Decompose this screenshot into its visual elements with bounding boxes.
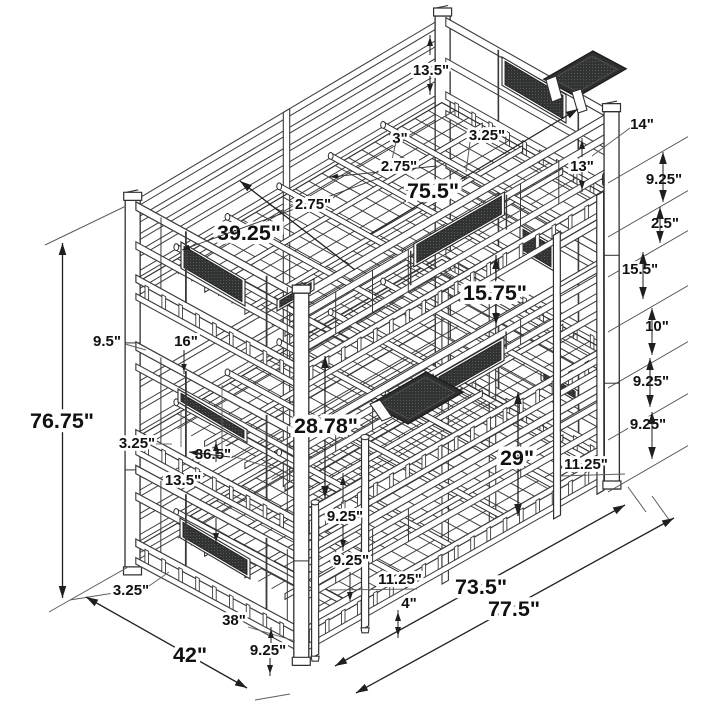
svg-text:4": 4" bbox=[401, 595, 416, 612]
svg-text:13.5": 13.5" bbox=[413, 62, 449, 79]
svg-text:28.78": 28.78" bbox=[294, 414, 358, 438]
svg-text:39.25": 39.25" bbox=[217, 221, 281, 245]
svg-text:77.5": 77.5" bbox=[488, 597, 540, 621]
svg-text:76.75": 76.75" bbox=[30, 409, 94, 433]
svg-text:3": 3" bbox=[392, 130, 407, 147]
svg-text:9.25": 9.25" bbox=[633, 373, 669, 390]
svg-text:2.75": 2.75" bbox=[381, 158, 417, 175]
svg-text:10": 10" bbox=[645, 318, 669, 335]
svg-text:9.25": 9.25" bbox=[327, 508, 363, 525]
svg-text:14": 14" bbox=[630, 116, 654, 133]
svg-text:29": 29" bbox=[500, 446, 534, 470]
svg-text:13.5": 13.5" bbox=[165, 472, 201, 489]
svg-text:11.25": 11.25" bbox=[564, 456, 608, 473]
svg-text:11.25": 11.25" bbox=[378, 571, 422, 588]
svg-text:16": 16" bbox=[174, 333, 198, 350]
svg-text:38": 38" bbox=[222, 612, 246, 629]
svg-text:15.75": 15.75" bbox=[463, 281, 527, 305]
svg-text:2.5": 2.5" bbox=[651, 215, 679, 232]
svg-text:3.25": 3.25" bbox=[113, 582, 149, 599]
svg-text:9.25": 9.25" bbox=[630, 416, 666, 433]
svg-text:9.25": 9.25" bbox=[333, 552, 369, 569]
svg-text:42": 42" bbox=[173, 643, 207, 667]
svg-text:2.75": 2.75" bbox=[295, 196, 331, 213]
svg-text:3.25": 3.25" bbox=[119, 435, 155, 452]
svg-text:9.25": 9.25" bbox=[646, 171, 682, 188]
svg-text:75.5": 75.5" bbox=[407, 179, 459, 203]
svg-text:9.5": 9.5" bbox=[93, 333, 121, 350]
svg-text:3.25": 3.25" bbox=[469, 127, 505, 144]
svg-text:73.5": 73.5" bbox=[455, 575, 507, 599]
svg-text:9.25": 9.25" bbox=[250, 642, 286, 659]
